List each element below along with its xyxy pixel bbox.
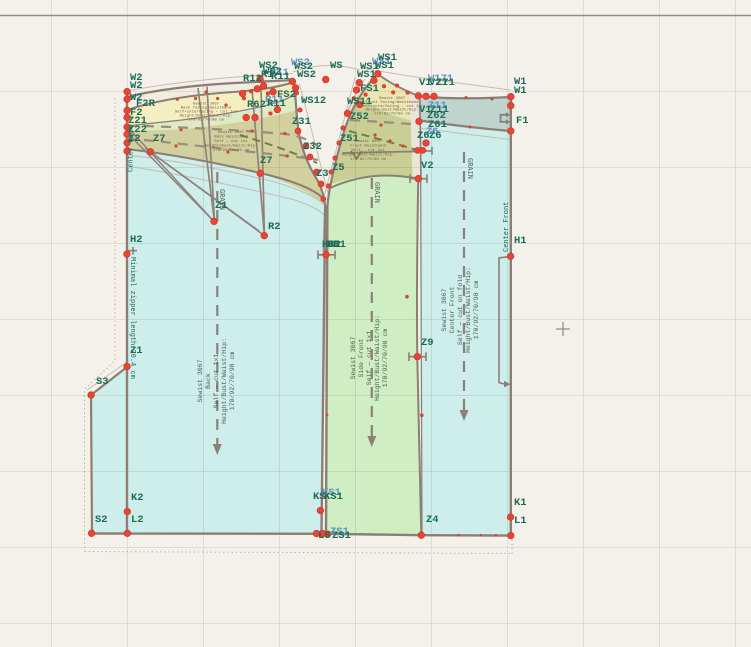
svg-text:Z32: Z32 [303, 141, 322, 153]
svg-text:Z71: Z71 [436, 77, 455, 89]
svg-text:WS1: WS1 [357, 69, 376, 81]
svg-text:K1: K1 [514, 497, 527, 509]
svg-text:ZS1: ZS1 [332, 530, 351, 542]
svg-text:Self - cut 1x1: Self - cut 1x1 [214, 139, 248, 144]
svg-text:Sewist 3067: Sewist 3067 [197, 359, 204, 402]
svg-text:Center Front: Center Front [449, 286, 456, 333]
svg-text:GRAIN: GRAIN [372, 182, 380, 203]
svg-text:Z31: Z31 [292, 116, 311, 128]
svg-text:GRAIN: GRAIN [465, 158, 473, 179]
svg-text:Self — cut 1x1: Self — cut 1x1 [366, 331, 373, 386]
svg-text:Sewist 3067: Sewist 3067 [441, 288, 448, 331]
svg-text:170/92/70/98 cm: 170/92/70/98 cm [374, 111, 411, 116]
svg-text:H2: H2 [130, 234, 143, 246]
svg-text:Height/Bust/Waist/Hip:: Height/Bust/Waist/Hip: [465, 267, 472, 353]
svg-text:Front Waistband: Front Waistband [350, 144, 387, 149]
svg-text:Z3: Z3 [316, 168, 329, 180]
svg-text:S2: S2 [95, 514, 108, 526]
svg-text:Z9: Z9 [421, 337, 434, 349]
svg-text:170/92/70/98 cm: 170/92/70/98 cm [188, 118, 225, 123]
svg-text:W1: W1 [514, 85, 527, 97]
svg-text:L1: L1 [514, 515, 527, 527]
svg-text:Z6: Z6 [429, 130, 442, 142]
svg-text:Z5: Z5 [332, 162, 345, 174]
svg-text:S3: S3 [96, 376, 109, 388]
svg-text:R2: R2 [268, 221, 281, 233]
svg-text:Sewist 3067: Sewist 3067 [350, 336, 357, 379]
svg-text:FS1: FS1 [360, 83, 379, 95]
svg-text:Height/Bust/Waist/Hip:: Height/Bust/Waist/Hip: [374, 315, 381, 401]
svg-text:Back: Back [205, 373, 212, 389]
svg-text:Minimal zipper length 20.4 cm: Minimal zipper length 20.4 cm [128, 257, 136, 379]
svg-text:170/92/70/98 cm: 170/92/70/98 cm [382, 329, 389, 388]
svg-text:Self — cut on fold: Self — cut on fold [457, 275, 464, 345]
svg-text:WS1: WS1 [378, 52, 397, 64]
svg-text:WS2: WS2 [297, 69, 316, 81]
svg-text:V2: V2 [421, 160, 434, 172]
svg-text:170/92/70/98 cm: 170/92/70/98 cm [229, 352, 236, 411]
svg-text:Center Front: Center Front [503, 202, 511, 252]
svg-text:Height/Bust/Waist/Hip:: Height/Bust/Waist/Hip: [221, 338, 228, 424]
svg-text:170/92/70/98 cm: 170/92/70/98 cm [473, 281, 480, 340]
svg-text:Z52: Z52 [350, 111, 369, 123]
svg-text:Z7: Z7 [153, 133, 166, 145]
svg-text:Back Waistband: Back Waistband [214, 135, 248, 140]
svg-text:H1: H1 [514, 235, 527, 247]
svg-text:KS1: KS1 [324, 491, 343, 503]
svg-text:Height/Bust/Waist/Hip:: Height/Bust/Waist/Hip: [342, 153, 395, 158]
svg-text:WS2: WS2 [263, 66, 282, 78]
svg-text:L2: L2 [131, 514, 144, 526]
svg-text:Center back: Center back [128, 126, 136, 172]
svg-text:Height/Bust/Waist/Hip:: Height/Bust/Waist/Hip: [205, 144, 258, 149]
svg-text:R62: R62 [247, 99, 266, 111]
svg-text:WS12: WS12 [301, 95, 326, 107]
svg-text:Z4: Z4 [426, 514, 439, 526]
svg-text:R11: R11 [267, 98, 286, 110]
svg-text:GRAIN: GRAIN [217, 189, 225, 210]
svg-text:HB1: HB1 [327, 239, 346, 251]
svg-text:W2: W2 [130, 80, 143, 92]
svg-text:Z6: Z6 [417, 130, 430, 142]
svg-text:Side Front: Side Front [358, 338, 365, 377]
svg-text:F1: F1 [516, 115, 529, 127]
svg-text:WS: WS [330, 60, 343, 72]
svg-text:R12: R12 [243, 73, 262, 85]
svg-text:LS: LS [318, 530, 331, 542]
svg-text:Z7: Z7 [260, 155, 273, 167]
svg-text:170/92/70/98 cm: 170/92/70/98 cm [350, 157, 387, 162]
svg-text:Self - cut 1x1: Self - cut 1x1 [351, 148, 385, 153]
svg-text:170/92/70/98 cm: 170/92/70/98 cm [213, 148, 250, 153]
svg-text:K2: K2 [131, 492, 144, 504]
svg-text:Sewist 3067: Sewist 3067 [355, 139, 382, 144]
svg-text:Sewist 3067: Sewist 3067 [218, 130, 245, 135]
svg-text:Self — cut 1x1: Self — cut 1x1 [213, 354, 220, 409]
